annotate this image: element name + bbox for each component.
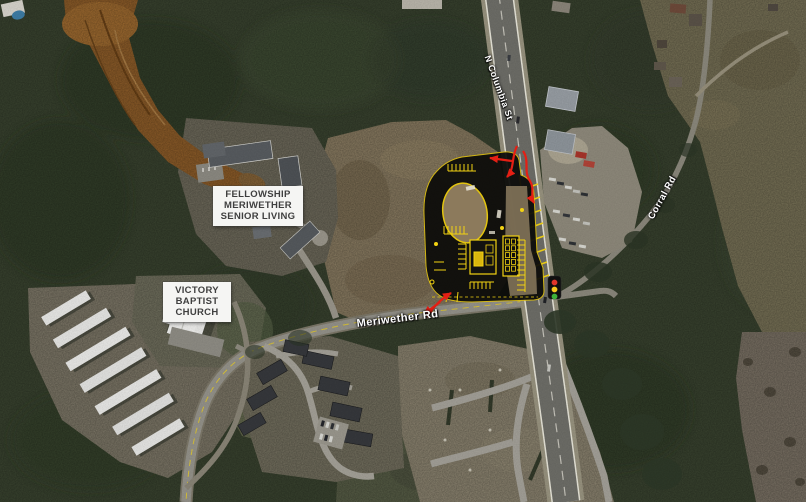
label-victory-baptist-church: VICTORY BAPTIST CHURCH xyxy=(163,282,231,322)
traffic-signal-icon xyxy=(548,276,561,299)
map-canvas xyxy=(0,0,806,502)
label-fellowship-meriwether-senior-living: FELLOWSHIP MERIWETHER SENIOR LIVING xyxy=(213,186,303,226)
photo-grain-2 xyxy=(0,0,806,502)
satellite-map[interactable]: FELLOWSHIP MERIWETHER SENIOR LIVING VICT… xyxy=(0,0,806,502)
